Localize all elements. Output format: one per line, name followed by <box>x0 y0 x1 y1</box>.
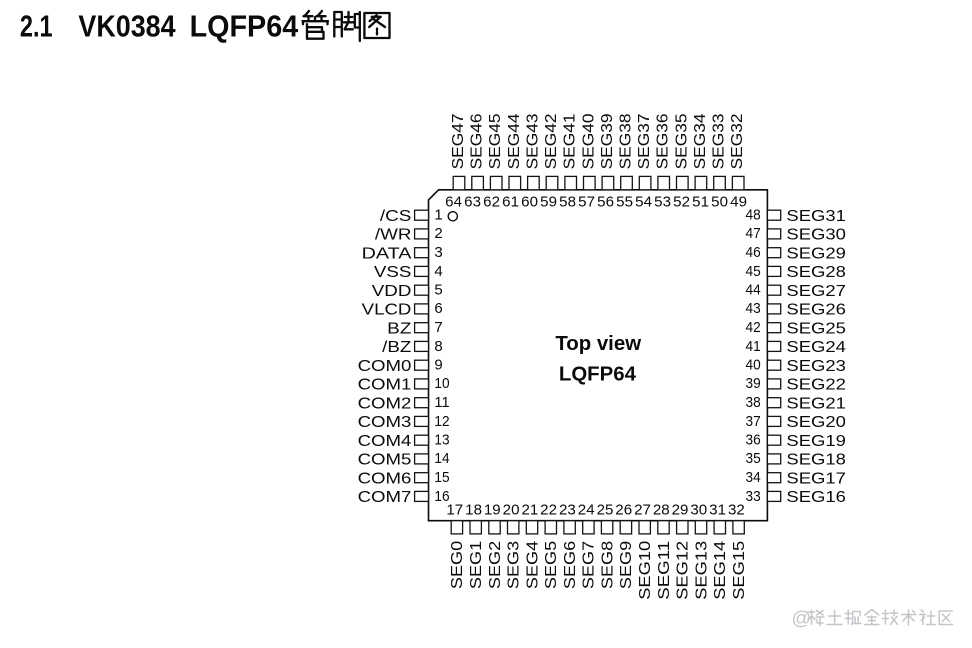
svg-text:SEG3: SEG3 <box>506 541 523 589</box>
svg-text:SEG40: SEG40 <box>580 113 597 169</box>
svg-text:53: 53 <box>654 194 671 211</box>
svg-text:51: 51 <box>692 194 709 211</box>
svg-text:37: 37 <box>746 413 761 430</box>
svg-text:SEG25: SEG25 <box>786 320 846 337</box>
svg-text:SEG5: SEG5 <box>543 541 560 589</box>
svg-text:62: 62 <box>483 194 500 211</box>
svg-text:7: 7 <box>434 319 442 336</box>
svg-text:/BZ: /BZ <box>382 339 411 356</box>
svg-text:21: 21 <box>522 501 539 518</box>
svg-text:SEG31: SEG31 <box>786 208 846 225</box>
svg-text:SEG42: SEG42 <box>543 113 560 169</box>
svg-text:48: 48 <box>746 207 761 224</box>
svg-text:COM6: COM6 <box>358 470 412 487</box>
svg-text:5: 5 <box>434 282 442 299</box>
svg-text:41: 41 <box>746 338 761 355</box>
svg-text:3: 3 <box>434 244 442 261</box>
svg-text:SEG29: SEG29 <box>786 245 846 262</box>
svg-text:35: 35 <box>746 450 761 467</box>
svg-text:61: 61 <box>502 194 519 211</box>
svg-text:COM5: COM5 <box>358 452 412 469</box>
svg-text:59: 59 <box>540 194 557 211</box>
svg-text:46: 46 <box>746 244 761 261</box>
svg-text:SEG26: SEG26 <box>786 302 846 319</box>
svg-text:32: 32 <box>728 501 745 518</box>
svg-text:SEG47: SEG47 <box>450 113 467 169</box>
svg-text:23: 23 <box>559 501 576 518</box>
svg-text:25: 25 <box>597 501 614 518</box>
svg-text:SEG4: SEG4 <box>524 540 541 589</box>
svg-text:26: 26 <box>615 501 632 518</box>
svg-text:COM3: COM3 <box>358 414 412 431</box>
svg-text:55: 55 <box>616 194 633 211</box>
svg-text:6: 6 <box>434 300 442 317</box>
svg-text:SEG33: SEG33 <box>711 113 728 169</box>
svg-text:COM2: COM2 <box>358 395 412 412</box>
svg-text:SEG8: SEG8 <box>599 541 616 589</box>
svg-text:4: 4 <box>434 263 442 280</box>
svg-text:SEG41: SEG41 <box>562 113 579 169</box>
svg-text:13: 13 <box>434 432 449 449</box>
svg-text:18: 18 <box>465 501 482 518</box>
svg-text:28: 28 <box>653 501 670 518</box>
svg-text:SEG46: SEG46 <box>469 113 486 169</box>
svg-text:19: 19 <box>484 501 501 518</box>
svg-text:63: 63 <box>464 194 481 211</box>
svg-text:15: 15 <box>434 469 449 486</box>
svg-text:11: 11 <box>434 394 449 411</box>
svg-text:SEG7: SEG7 <box>581 541 598 589</box>
svg-text:BZ: BZ <box>387 320 411 337</box>
svg-text:12: 12 <box>434 413 449 430</box>
svg-text:SEG16: SEG16 <box>786 489 846 506</box>
svg-text:SEG23: SEG23 <box>786 358 846 375</box>
svg-text:SEG11: SEG11 <box>656 541 673 600</box>
svg-text:27: 27 <box>634 501 651 518</box>
svg-text:42: 42 <box>746 319 761 336</box>
svg-text:8: 8 <box>434 338 442 355</box>
svg-text:1: 1 <box>434 207 442 224</box>
svg-text:COM7: COM7 <box>358 489 412 506</box>
svg-text:33: 33 <box>746 488 761 505</box>
svg-text:SEG12: SEG12 <box>675 541 692 600</box>
svg-text:SEG15: SEG15 <box>731 541 748 600</box>
svg-text:SEG27: SEG27 <box>786 283 846 300</box>
svg-text:58: 58 <box>559 194 576 211</box>
svg-text:56: 56 <box>597 194 614 211</box>
svg-text:64: 64 <box>445 194 462 211</box>
svg-text:SEG6: SEG6 <box>562 541 579 589</box>
svg-text:44: 44 <box>746 282 761 299</box>
svg-text:SEG35: SEG35 <box>673 113 690 169</box>
svg-text:VDD: VDD <box>372 283 412 300</box>
svg-text:SEG30: SEG30 <box>786 227 846 244</box>
svg-text:38: 38 <box>746 394 761 411</box>
svg-text:SEG34: SEG34 <box>692 113 709 169</box>
svg-text:24: 24 <box>578 501 595 518</box>
svg-text:31: 31 <box>709 501 726 518</box>
svg-text:VSS: VSS <box>374 264 412 281</box>
svg-text:DATA: DATA <box>362 245 413 262</box>
svg-text:22: 22 <box>540 501 557 518</box>
svg-text:45: 45 <box>746 263 761 280</box>
svg-text:9: 9 <box>434 357 442 374</box>
svg-text:54: 54 <box>635 194 652 211</box>
svg-text:/CS: /CS <box>380 208 412 225</box>
svg-text:COM0: COM0 <box>358 358 412 375</box>
svg-text:SEG43: SEG43 <box>524 113 541 169</box>
svg-text:36: 36 <box>746 432 761 449</box>
svg-text:SEG44: SEG44 <box>506 113 523 169</box>
svg-text:10: 10 <box>434 375 449 392</box>
svg-text:14: 14 <box>434 450 449 467</box>
svg-text:Top view: Top view <box>555 333 641 355</box>
svg-text:SEG38: SEG38 <box>618 113 635 169</box>
svg-text:47: 47 <box>746 225 761 242</box>
svg-text:SEG2: SEG2 <box>487 541 504 589</box>
svg-text:COM1: COM1 <box>358 377 412 394</box>
svg-text:57: 57 <box>578 194 595 211</box>
svg-text:SEG32: SEG32 <box>729 113 746 169</box>
svg-text:COM4: COM4 <box>358 433 412 450</box>
svg-text:VLCD: VLCD <box>362 302 412 319</box>
svg-text:34: 34 <box>746 469 761 486</box>
svg-text:SEG1: SEG1 <box>468 541 485 589</box>
svg-text:SEG18: SEG18 <box>786 452 846 469</box>
svg-text:39: 39 <box>746 375 761 392</box>
svg-text:52: 52 <box>673 194 690 211</box>
svg-text:SEG28: SEG28 <box>786 264 846 281</box>
svg-text:SEG36: SEG36 <box>655 113 672 169</box>
svg-text:SEG21: SEG21 <box>786 395 846 412</box>
svg-text:29: 29 <box>672 501 689 518</box>
svg-text:SEG10: SEG10 <box>637 540 654 599</box>
svg-text:VK0384: VK0384 <box>78 9 176 44</box>
svg-text:40: 40 <box>746 357 761 374</box>
svg-text:/WR: /WR <box>375 227 412 244</box>
svg-text:SEG37: SEG37 <box>636 113 653 169</box>
svg-text:50: 50 <box>711 194 728 211</box>
svg-text:SEG39: SEG39 <box>599 113 616 169</box>
svg-text:LQFP64: LQFP64 <box>190 9 299 44</box>
svg-text:SEG24: SEG24 <box>786 339 846 356</box>
svg-text:SEG14: SEG14 <box>712 540 729 599</box>
svg-text:49: 49 <box>730 194 747 211</box>
svg-text:LQFP64: LQFP64 <box>559 363 637 385</box>
svg-text:60: 60 <box>521 194 538 211</box>
svg-text:20: 20 <box>503 501 520 518</box>
svg-text:43: 43 <box>746 300 761 317</box>
svg-text:SEG13: SEG13 <box>693 541 710 600</box>
svg-text:30: 30 <box>690 501 707 518</box>
svg-text:2: 2 <box>434 225 442 242</box>
svg-text:SEG0: SEG0 <box>449 540 466 589</box>
svg-text:17: 17 <box>446 501 463 518</box>
svg-text:SEG17: SEG17 <box>786 470 846 487</box>
svg-text:SEG20: SEG20 <box>786 414 846 431</box>
svg-text:SEG45: SEG45 <box>487 113 504 169</box>
svg-text:2.1: 2.1 <box>20 9 53 44</box>
svg-text:SEG19: SEG19 <box>786 433 846 450</box>
svg-text:SEG9: SEG9 <box>618 541 635 589</box>
svg-text:SEG22: SEG22 <box>786 377 846 394</box>
